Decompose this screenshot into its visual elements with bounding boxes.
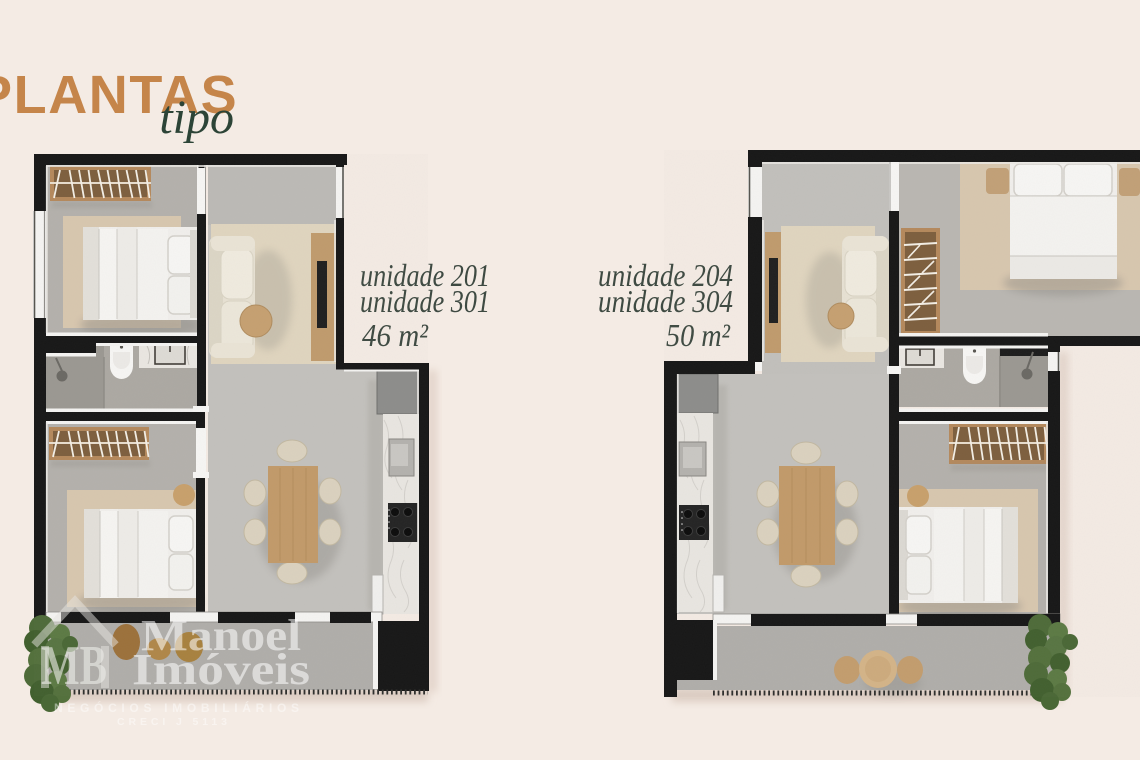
svg-text:CRECI J 5113: CRECI J 5113 <box>117 716 227 728</box>
svg-text:MB: MB <box>41 635 107 697</box>
svg-text:tipo: tipo <box>159 91 234 144</box>
svg-text:Imóveis: Imóveis <box>132 645 310 694</box>
